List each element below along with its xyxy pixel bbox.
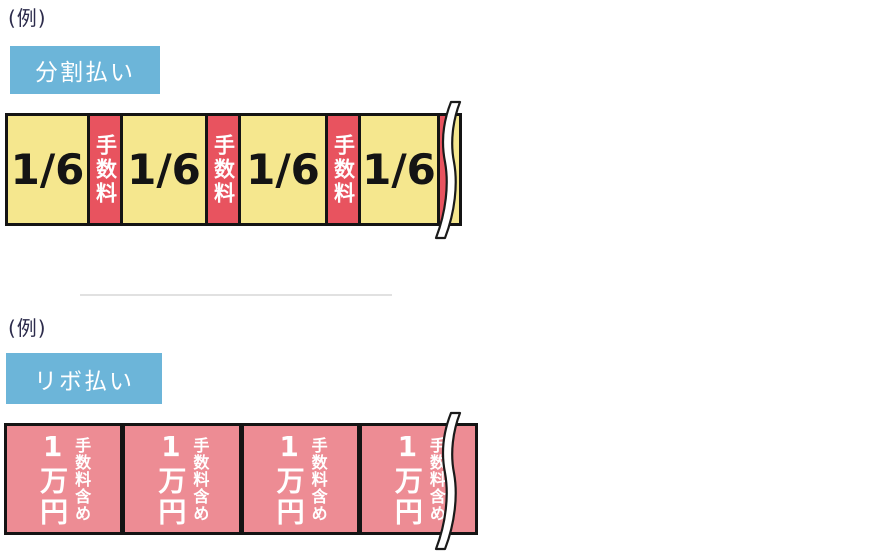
fee-included-note: 手数料含め	[73, 437, 89, 522]
example-label-installment: (例)	[8, 2, 47, 31]
torn-edge-mark	[433, 100, 462, 240]
payment-amount-label: 1万円	[393, 430, 421, 528]
fee-segment: 手数料	[325, 116, 361, 223]
payment-fraction-label: 1/6	[362, 145, 436, 194]
payment-amount-label: 1万円	[156, 430, 184, 528]
example-label-revolving: (例)	[8, 312, 47, 341]
fee-label: 手数料	[95, 134, 116, 206]
revolving-bar: 1万円 手数料含め 1万円 手数料含め 1万円 手数料含め 1万円 手数料含め	[4, 423, 478, 535]
fee-included-note: 手数料含め	[310, 437, 326, 522]
revolving-payment-segment: 1万円 手数料含め	[125, 426, 243, 532]
fee-label: 手数料	[333, 134, 354, 206]
payment-amount-label: 1万円	[275, 430, 303, 528]
payment-amount-label: 1万円	[38, 430, 66, 528]
fee-included-note: 手数料含め	[191, 437, 207, 522]
installment-payment-segment: 1/6	[241, 116, 325, 223]
payment-fraction-label: 1/6	[11, 145, 85, 194]
installment-bar: 1/6 手数料 1/6 手数料 1/6 手数料 1/6	[5, 113, 462, 226]
installment-payment-segment: 1/6	[361, 116, 437, 223]
fee-segment: 手数料	[87, 116, 123, 223]
payment-fraction-label: 1/6	[246, 145, 320, 194]
installment-method-badge: 分割払い	[10, 46, 160, 94]
revolving-method-badge: リボ払い	[6, 353, 162, 404]
payment-fraction-label: 1/6	[127, 145, 201, 194]
revolving-payment-segment: 1万円 手数料含め	[244, 426, 362, 532]
fee-segment: 手数料	[205, 116, 241, 223]
fee-label: 手数料	[213, 134, 234, 206]
revolving-payment-segment: 1万円 手数料含め	[7, 426, 125, 532]
installment-payment-segment: 1/6	[8, 116, 87, 223]
installment-payment-segment: 1/6	[123, 116, 205, 223]
torn-edge-mark	[433, 411, 462, 551]
payment-methods-diagram: (例) 分割払い 1/6 手数料 1/6 手数料 1/6 手数料 1/6	[0, 0, 870, 553]
section-divider	[80, 294, 392, 296]
